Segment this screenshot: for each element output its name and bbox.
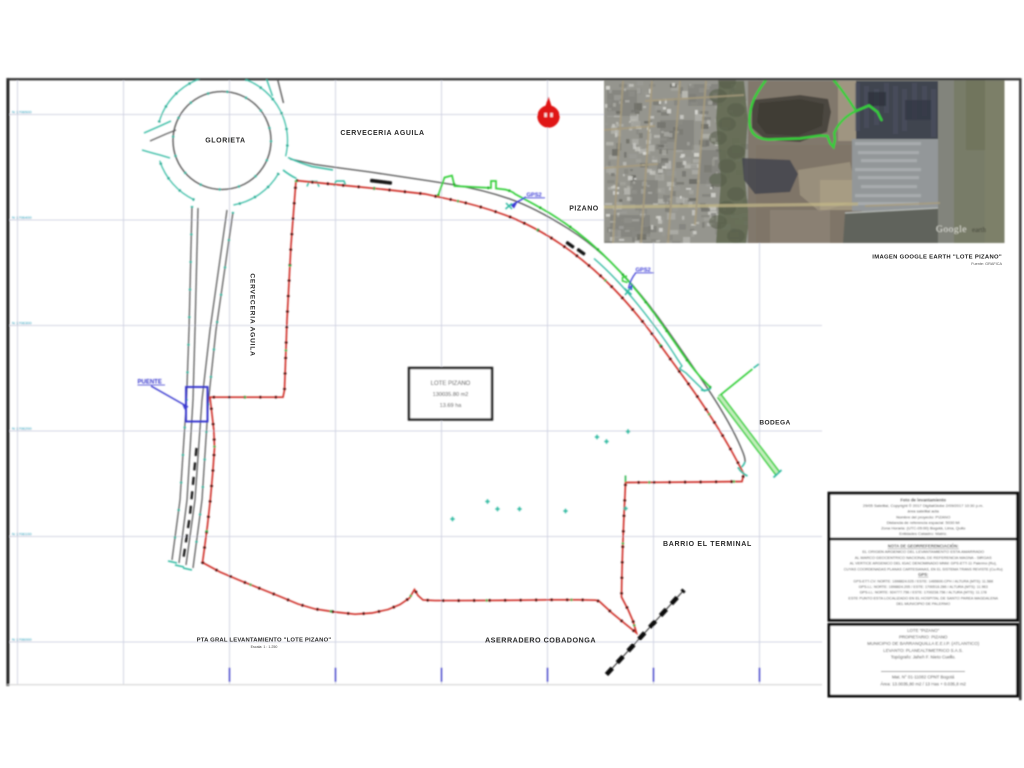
svg-text:ESTE PUNTO ESTA LOCALIZADO EN: ESTE PUNTO ESTA LOCALIZADO EN EL HOSPITA… bbox=[848, 596, 998, 600]
svg-text:BARRIO EL TERMINAL: BARRIO EL TERMINAL bbox=[663, 541, 752, 548]
svg-text:PIZANO: PIZANO bbox=[569, 206, 599, 213]
svg-text:PUENTE: PUENTE bbox=[138, 380, 162, 386]
svg-text:Nombre del proyecto: PIZANO: Nombre del proyecto: PIZANO bbox=[896, 514, 950, 519]
svg-text:área satelital acta: área satelital acta bbox=[908, 509, 940, 514]
svg-text:MUNICIPIO DE BARRANQUILLA E.E.: MUNICIPIO DE BARRANQUILLA E.E.I.P. (ATLA… bbox=[867, 641, 980, 646]
svg-text:130035.80 m2: 130035.80 m2 bbox=[433, 392, 469, 398]
svg-text:AL VERTICE ARGENICO DEL IGAC D: AL VERTICE ARGENICO DEL IGAC DENOMINADO … bbox=[850, 562, 997, 566]
svg-text:GPS-LL: NORTE: 924777.756 /: GPS-LL: NORTE: 924777.756 / ESTE: 170023… bbox=[860, 591, 987, 595]
svg-text:earth: earth bbox=[972, 226, 986, 234]
svg-text:Google: Google bbox=[936, 225, 967, 235]
svg-text:AL MARCO GEOCENTRICO NACIONAL: AL MARCO GEOCENTRICO NACIONAL DE REFEREN… bbox=[855, 555, 992, 560]
svg-text:LOTE "PIZANO": LOTE "PIZANO" bbox=[907, 628, 940, 633]
svg-text:GPS-ETT-CV: NORTE: 1698824.025: GPS-ETT-CV: NORTE: 1698824.025 / ESTE: 1… bbox=[853, 579, 993, 583]
svg-text:CUYAS COORDENADAS PLANAS CARTE: CUYAS COORDENADAS PLANAS CARTESIANAS, EN… bbox=[844, 567, 1003, 571]
svg-text:N 1706400: N 1706400 bbox=[12, 215, 32, 220]
svg-text:EL ORIGEN ARGENICO DEL LEVANTA: EL ORIGEN ARGENICO DEL LEVANTAMIENTO EST… bbox=[862, 549, 984, 554]
svg-text:PTA GRAL LEVANTAMIENTO "LOTE P: PTA GRAL LEVANTAMIENTO "LOTE PIZANO" bbox=[197, 638, 332, 644]
svg-text:N 1706000: N 1706000 bbox=[12, 637, 32, 642]
svg-text:Distancia de referencia espaci: Distancia de referencia espacial: 5030 M… bbox=[887, 520, 960, 525]
svg-text:LEVANTO: PLANEALTIMETRICO S.A.: LEVANTO: PLANEALTIMETRICO S.A.S. bbox=[883, 648, 963, 653]
svg-text:Fuente: GRAFICA: Fuente: GRAFICA bbox=[971, 262, 1002, 266]
svg-text:Escala: 1 : 1.250: Escala: 1 : 1.250 bbox=[251, 645, 278, 649]
svg-text:N 1706100: N 1706100 bbox=[12, 531, 32, 536]
svg-text:N 1706300: N 1706300 bbox=[12, 320, 32, 325]
svg-text:Mat. N° 01-11082 CPNT Bogotá: Mat. N° 01-11082 CPNT Bogotá bbox=[892, 675, 955, 680]
svg-text:PROPIETARIO: PIZANO: PROPIETARIO: PIZANO bbox=[899, 635, 948, 640]
svg-text:CERVECERIA AGUILA: CERVECERIA AGUILA bbox=[340, 130, 424, 137]
svg-text:29/05 Satelital, Copyright © 2: 29/05 Satelital, Copyright © 2017 Digita… bbox=[863, 503, 984, 508]
svg-text:CERVECERIA AGUILA: CERVECERIA AGUILA bbox=[249, 273, 256, 356]
svg-text:GLORIETA: GLORIETA bbox=[205, 138, 245, 145]
svg-text:NOTA DE GEORREFERENCIACIÓN:: NOTA DE GEORREFERENCIACIÓN: bbox=[888, 544, 959, 549]
svg-text:LOTE PIZANO: LOTE PIZANO bbox=[431, 381, 471, 387]
svg-text:ASERRADERO COBADONGA: ASERRADERO COBADONGA bbox=[485, 636, 596, 645]
svg-text:N 1706500: N 1706500 bbox=[12, 109, 32, 114]
svg-text:13.69 ha: 13.69 ha bbox=[440, 403, 463, 409]
svg-text:IMAGEN GOOGLE EARTH "LOTE PIZA: IMAGEN GOOGLE EARTH "LOTE PIZANO" bbox=[872, 255, 1002, 261]
svg-text:Área: 13.0035,80 m2 / 13 Has +: Área: 13.0035,80 m2 / 13 Has + 0.035,8 m… bbox=[880, 682, 966, 687]
svg-text:DEL MUNICIPIO DE PALERMO: DEL MUNICIPIO DE PALERMO bbox=[896, 602, 950, 606]
svg-text:Entidades Catastro: Matriz.: Entidades Catastro: Matriz. bbox=[899, 531, 947, 536]
svg-text:Zona Horaria: (UTC-05:00) Bogo: Zona Horaria: (UTC-05:00) Bogotá, Lima, … bbox=[881, 526, 966, 531]
svg-text:GPS-LL: NORTE: 1698824.205 /: GPS-LL: NORTE: 1698824.205 / ESTE: 17005… bbox=[859, 585, 988, 589]
svg-text:N 1706200: N 1706200 bbox=[12, 426, 32, 431]
svg-text:GPS:: GPS: bbox=[918, 572, 928, 577]
svg-text:Foto de levantamiento: Foto de levantamiento bbox=[900, 498, 946, 503]
svg-text:Topógrafo: Jaheh F. Nieto Cuel: Topógrafo: Jaheh F. Nieto Cuello. bbox=[891, 654, 956, 659]
svg-text:BODEGA: BODEGA bbox=[759, 420, 790, 427]
